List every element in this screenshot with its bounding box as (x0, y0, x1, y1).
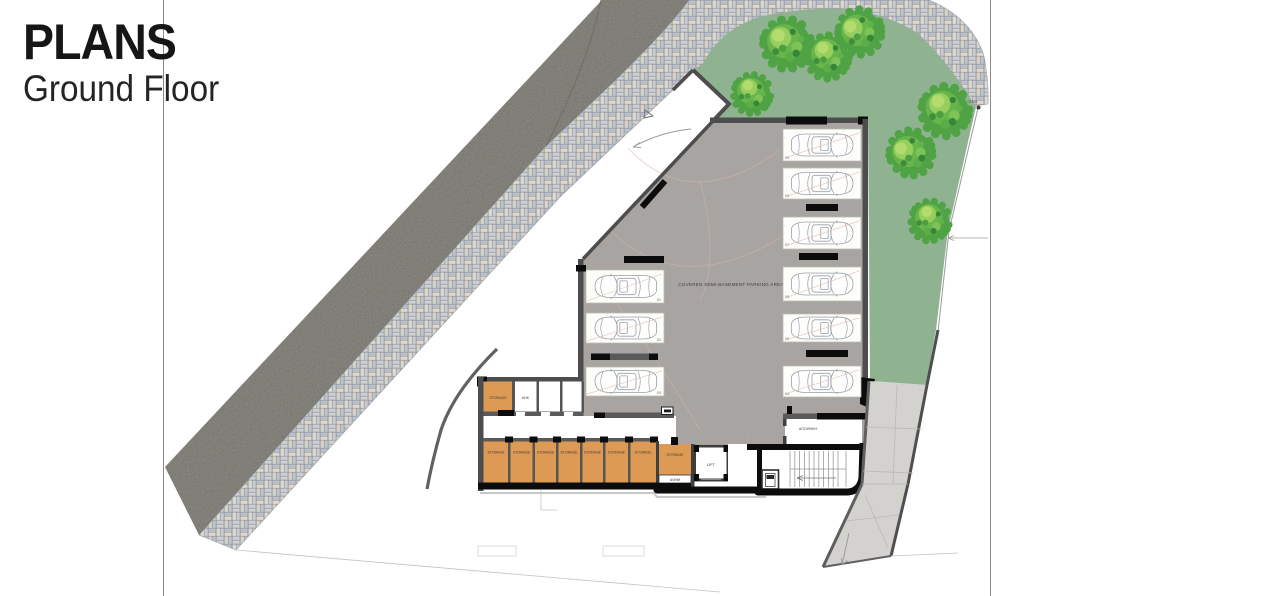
svg-text:AHK: AHK (522, 396, 530, 400)
svg-text:-3.50: -3.50 (967, 99, 978, 104)
svg-text:COVERED SEMI-BASEMENT PARKING: COVERED SEMI-BASEMENT PARKING AREA (678, 282, 784, 287)
svg-text:02: 02 (657, 338, 661, 342)
svg-text:A/XHM: A/XHM (670, 478, 680, 482)
svg-text:STORAGE: STORAGE (666, 453, 684, 457)
svg-text:LIFT: LIFT (707, 462, 716, 467)
svg-text:STORAGE: STORAGE (560, 451, 578, 455)
svg-text:STORAGE: STORAGE (584, 451, 602, 455)
svg-text:ΑΠΟΘΗΚΗ: ΑΠΟΘΗΚΗ (799, 427, 818, 431)
svg-text:01: 01 (657, 298, 661, 302)
svg-text:STORAGE: STORAGE (608, 451, 626, 455)
svg-text:STORAGE: STORAGE (537, 451, 555, 455)
svg-text:STORAGE: STORAGE (487, 451, 505, 455)
svg-text:STORAGE: STORAGE (634, 451, 652, 455)
svg-text:STORAGE: STORAGE (489, 396, 507, 400)
svg-text:STORAGE: STORAGE (513, 451, 531, 455)
svg-text:03: 03 (657, 391, 661, 395)
